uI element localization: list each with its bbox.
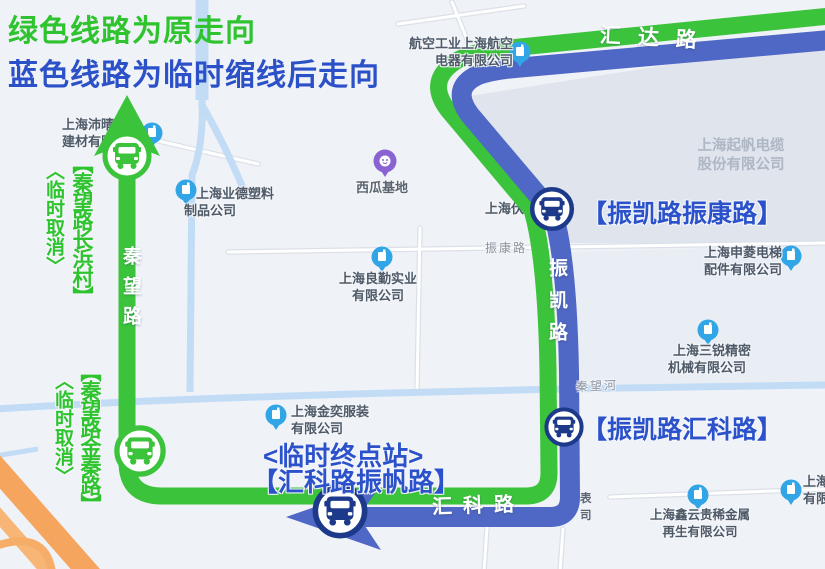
road-label-qinwang: 秦望路 (117, 246, 144, 336)
poi-label-text: 股份有限公司 (686, 156, 796, 175)
poi-label-text: 上海起帆电缆 (686, 137, 796, 156)
poi-label-text: 配件有限公司 (704, 261, 782, 278)
stop-label-zhenkai-huike: 【振凯路汇科路】 (582, 410, 782, 446)
poi-label-text: 表 (580, 491, 592, 508)
stop-label-zhenkai-zhenkang: 【振凯路振康路】 (582, 194, 782, 230)
bus-route-map: 上海沛晴 建材有限 上海伏骏 (0, 0, 825, 569)
text-layer: 绿色线路为原走向 蓝色线路为临时缩线后走向 汇达路 秦望路 振凯路 汇科路 振康… (0, 0, 825, 569)
poi-label-jinyi: 上海金奕服装 有限公司 (291, 403, 369, 437)
poi-label-qifan: 上海起帆电缆 股份有限公司 (686, 137, 796, 175)
legend-blue-line: 蓝色线路为临时缩线后走向 (8, 50, 380, 94)
stop-label-changbang-name: 【秦望路长浜村】 (66, 153, 96, 305)
poi-label-text: 上海 (803, 473, 825, 490)
poi-label-text: 上海三锐精密 (673, 342, 751, 359)
poi-label-liangqin: 上海良勤实业 有限公司 (338, 270, 418, 304)
poi-label-text: 上海鑫云贵稀金属 (648, 507, 752, 524)
poi-label-text: 再生有限公司 (648, 524, 752, 541)
poi-label-text: 电器有限公司 (403, 52, 513, 69)
poi-label-text: 机械有限公司 (668, 359, 751, 376)
poi-label-text: 有限公司 (291, 420, 369, 437)
road-label-zhenkang: 振康路 (485, 239, 527, 256)
poi-label-partial: 表 司 (580, 491, 592, 524)
poi-label-text: 有限公司 (338, 287, 418, 304)
poi-label-shenling: 上海申菱电梯 配件有限公司 (704, 244, 782, 278)
stop-label-jinqin-name: 【秦望路金秦路】 (74, 361, 104, 513)
legend-green-line: 绿色线路为原走向 (8, 6, 380, 50)
road-label-huida: 汇达路 (599, 19, 714, 55)
poi-label-text: 航空工业上海航空 (403, 35, 513, 52)
stop-label-changbang-cancel: 〈临时取消〉 (40, 161, 67, 275)
poi-label-edge-right: 上海 有限 (803, 473, 825, 507)
poi-label-text: 上海金奕服装 (291, 403, 369, 420)
poi-label-xigua: 西瓜基地 (356, 179, 408, 196)
poi-label-text: 上海良勤实业 (338, 270, 418, 287)
poi-label-text: 司 (580, 508, 592, 525)
legend: 绿色线路为原走向 蓝色线路为临时缩线后走向 (8, 6, 380, 94)
road-label-zhenkai: 振凯路 (543, 258, 570, 354)
poi-label-xinyun: 上海鑫云贵稀金属 再生有限公司 (648, 507, 752, 540)
poi-label-text: 制品公司 (184, 202, 274, 219)
river-label-qinwanghe: 秦望河 (576, 376, 619, 394)
poi-label-sanrui: 上海三锐精密 机械有限公司 (668, 342, 751, 376)
poi-label-text: 上海业德塑料 (196, 185, 274, 202)
poi-label-hangkong: 航空工业上海航空 电器有限公司 (403, 35, 513, 69)
poi-label-yede: 上海业德塑料 制品公司 (184, 185, 274, 219)
stop-label-jinqin-cancel: 〈临时取消〉 (49, 371, 76, 485)
poi-label-text: 有限 (803, 490, 825, 507)
stop-label-terminal-name: 【汇科路振帆路】 (252, 462, 460, 499)
poi-label-text: 上海申菱电梯 (704, 244, 782, 261)
